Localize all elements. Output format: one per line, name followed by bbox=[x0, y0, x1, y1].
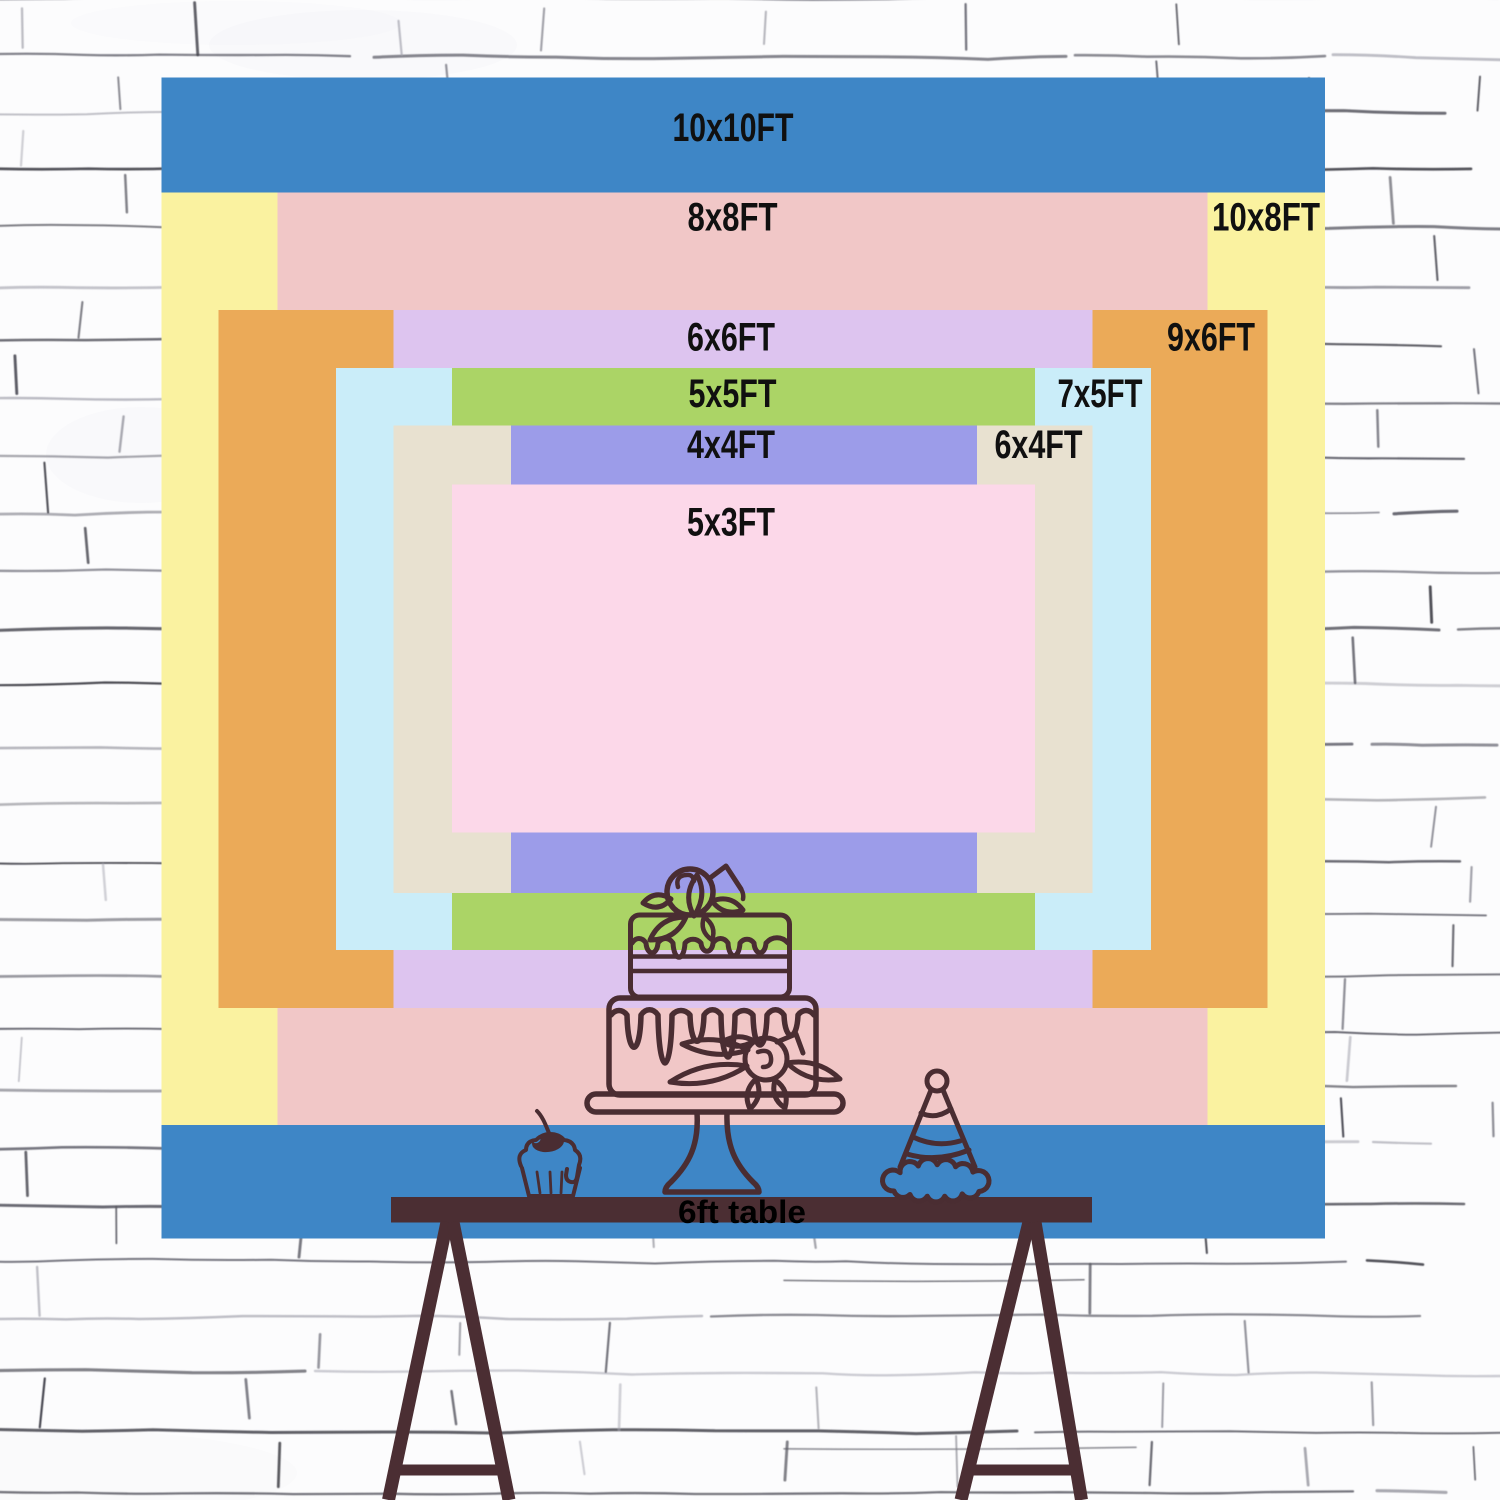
svg-text:5x5FT: 5x5FT bbox=[689, 372, 777, 416]
svg-text:5x3FT: 5x3FT bbox=[687, 501, 775, 545]
svg-text:10x10FT: 10x10FT bbox=[673, 106, 794, 150]
svg-text:6ft table: 6ft table bbox=[678, 1194, 806, 1230]
svg-text:6x6FT: 6x6FT bbox=[687, 316, 775, 360]
svg-text:6x4FT: 6x4FT bbox=[995, 423, 1083, 467]
svg-text:7x5FT: 7x5FT bbox=[1058, 372, 1143, 416]
svg-text:8x8FT: 8x8FT bbox=[688, 196, 778, 240]
svg-text:4x4FT: 4x4FT bbox=[687, 423, 775, 467]
svg-text:9x6FT: 9x6FT bbox=[1167, 316, 1255, 360]
svg-text:10x8FT: 10x8FT bbox=[1212, 196, 1320, 240]
